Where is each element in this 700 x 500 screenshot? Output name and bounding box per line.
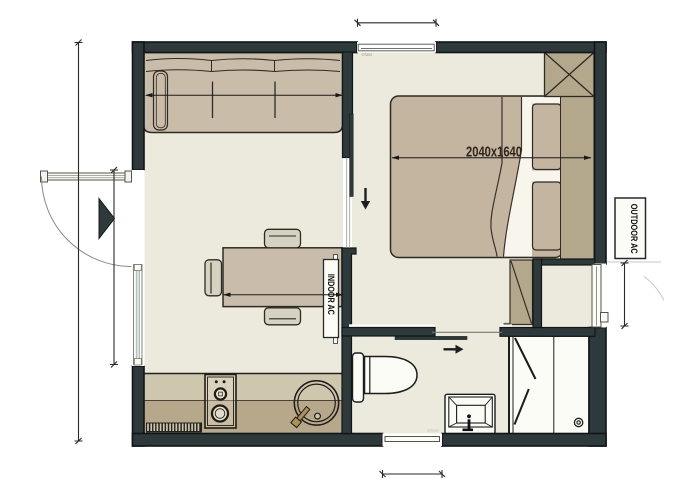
svg-text:OUTDOOR AC: OUTDOOR AC	[629, 204, 639, 254]
svg-text:Glass: Glass	[362, 52, 373, 57]
svg-text:2040x1640: 2040x1640	[466, 143, 522, 160]
